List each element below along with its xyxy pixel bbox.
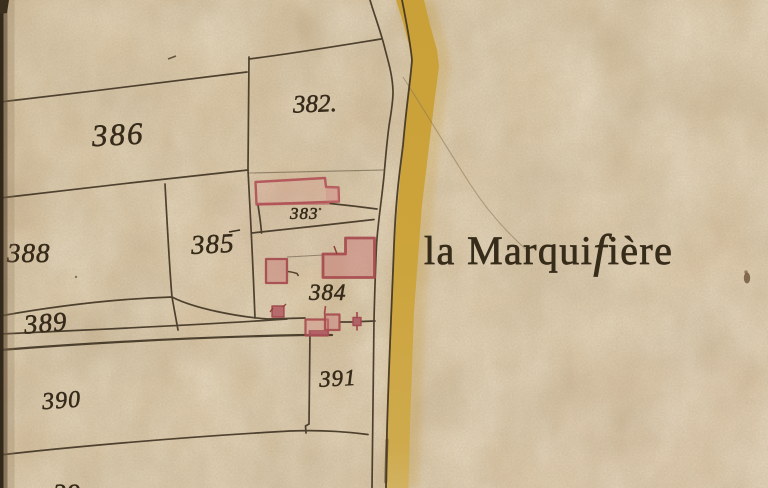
svg-text:390: 390 [40, 387, 82, 416]
svg-text:39: 39 [52, 479, 81, 488]
svg-text:391: 391 [317, 365, 357, 392]
svg-text:382.: 382. [292, 90, 338, 119]
svg-text:386: 386 [90, 116, 145, 154]
svg-text:389: 389 [22, 306, 69, 340]
svg-text:383: 383 [289, 204, 319, 223]
svg-text:la Marquifière: la Marquifière [424, 226, 673, 278]
svg-text:384: 384 [308, 280, 347, 305]
svg-text:385: 385 [189, 228, 235, 260]
